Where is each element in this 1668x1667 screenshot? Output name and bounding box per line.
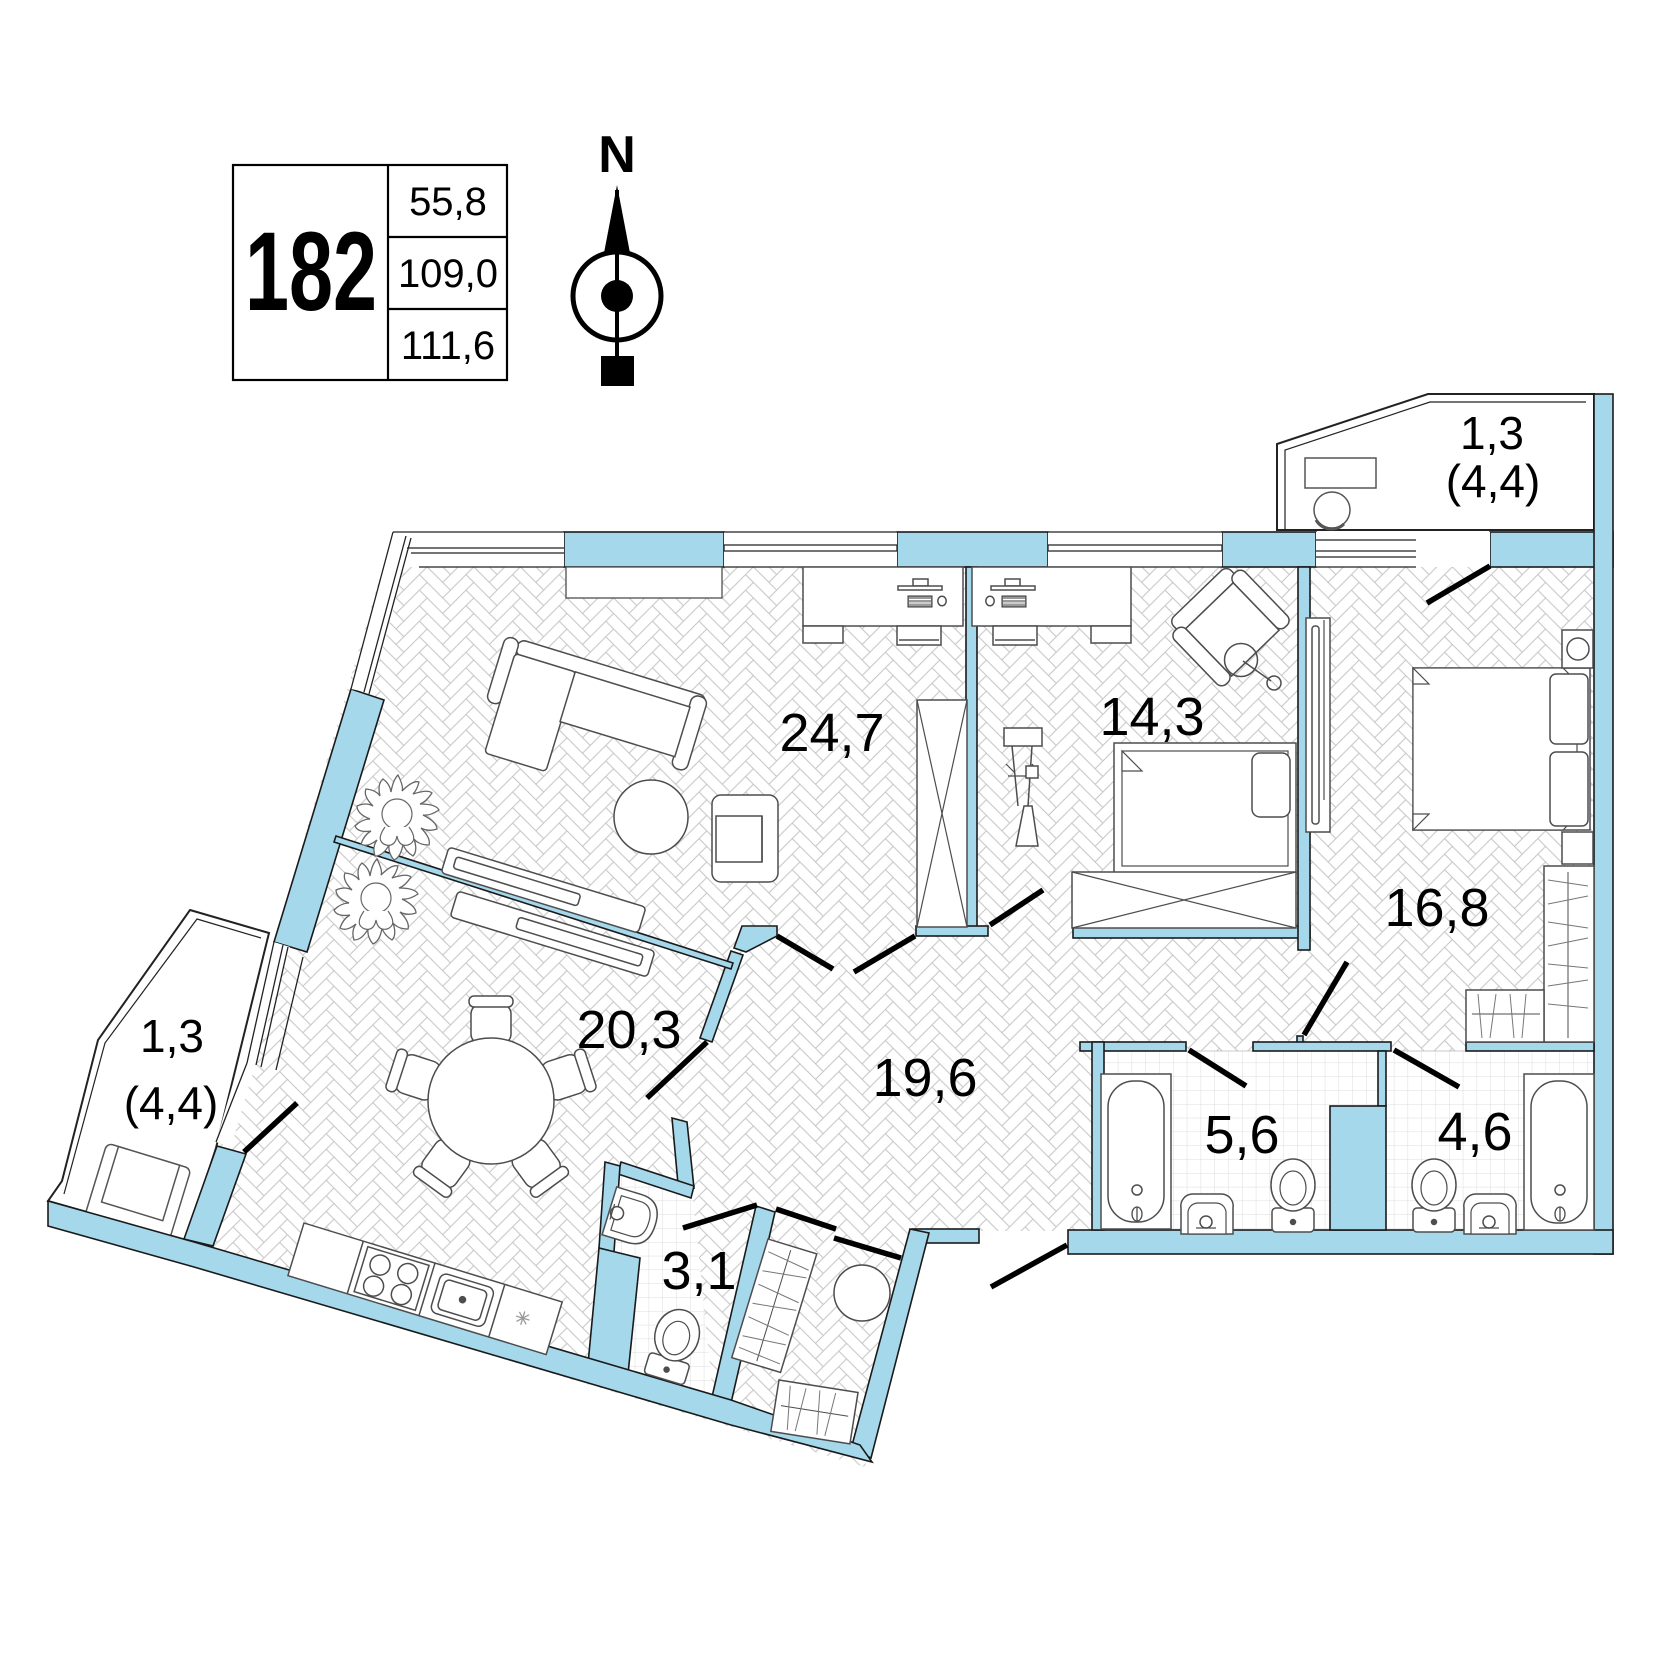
svg-text:19,6: 19,6 <box>872 1048 977 1108</box>
svg-text:1,3: 1,3 <box>140 1010 204 1062</box>
svg-text:55,8: 55,8 <box>409 180 487 224</box>
svg-text:(4,4): (4,4) <box>124 1077 219 1129</box>
svg-text:111,6: 111,6 <box>401 324 495 368</box>
svg-text:16,8: 16,8 <box>1384 878 1489 938</box>
svg-text:24,7: 24,7 <box>779 703 884 763</box>
svg-text:4,6: 4,6 <box>1437 1102 1512 1162</box>
svg-text:5,6: 5,6 <box>1204 1105 1279 1165</box>
svg-text:14,3: 14,3 <box>1099 687 1204 747</box>
svg-text:109,0: 109,0 <box>398 252 498 296</box>
svg-text:20,3: 20,3 <box>576 1000 681 1060</box>
svg-text:N: N <box>598 126 636 184</box>
svg-text:(4,4): (4,4) <box>1446 455 1541 507</box>
svg-text:182: 182 <box>245 209 377 334</box>
svg-text:1,3: 1,3 <box>1460 407 1524 459</box>
svg-text:3,1: 3,1 <box>661 1241 736 1301</box>
